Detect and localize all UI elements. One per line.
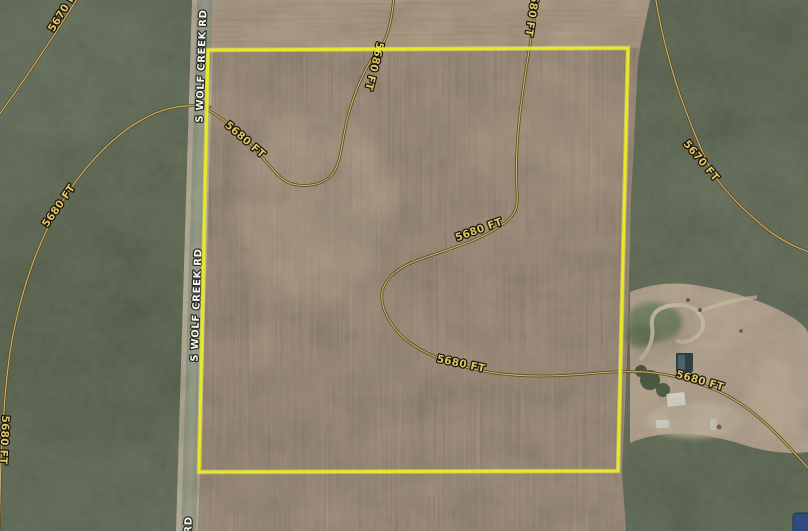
contour-label: 5680 FT	[0, 415, 11, 465]
map-canvas[interactable]: 5670 FT 5680 FT 5680 FT 5680 FT 5680 FT …	[0, 0, 808, 531]
logo-badge[interactable]	[793, 513, 808, 531]
road-name-label-clipped: RD	[183, 516, 195, 531]
